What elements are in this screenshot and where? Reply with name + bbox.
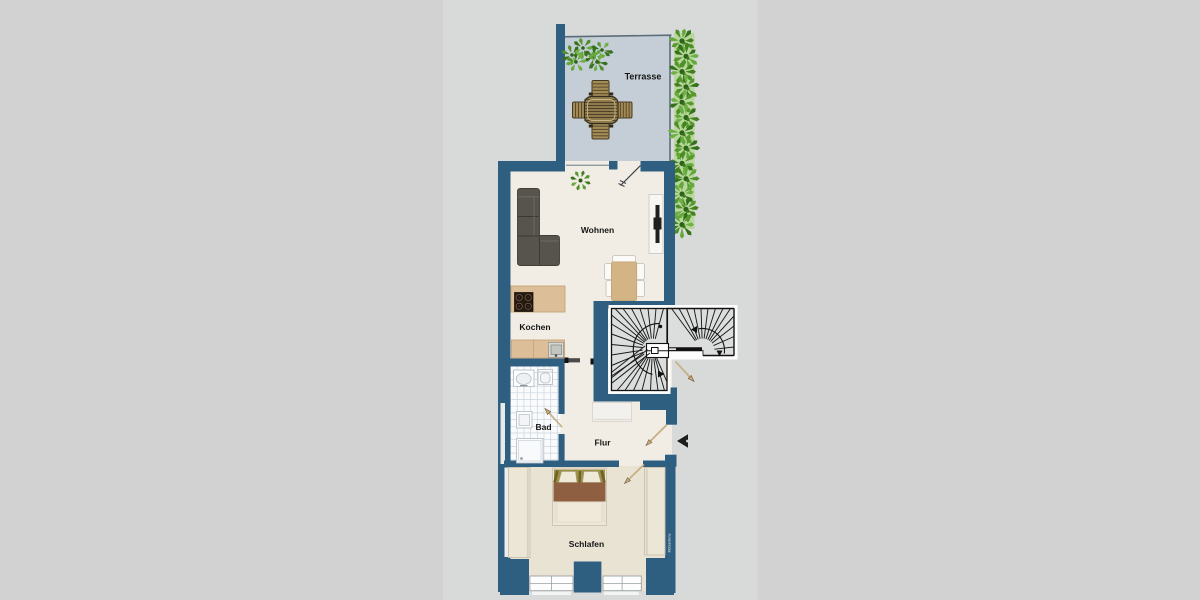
svg-text:Bad: Bad bbox=[535, 422, 551, 432]
svg-text:Flur: Flur bbox=[594, 438, 611, 448]
svg-text:McGardena: McGardena bbox=[667, 534, 671, 553]
svg-text:Kochen: Kochen bbox=[519, 322, 550, 332]
svg-text:Wohnen: Wohnen bbox=[581, 225, 614, 235]
svg-text:Terrasse: Terrasse bbox=[625, 72, 662, 82]
svg-text:Schlafen: Schlafen bbox=[569, 539, 604, 549]
